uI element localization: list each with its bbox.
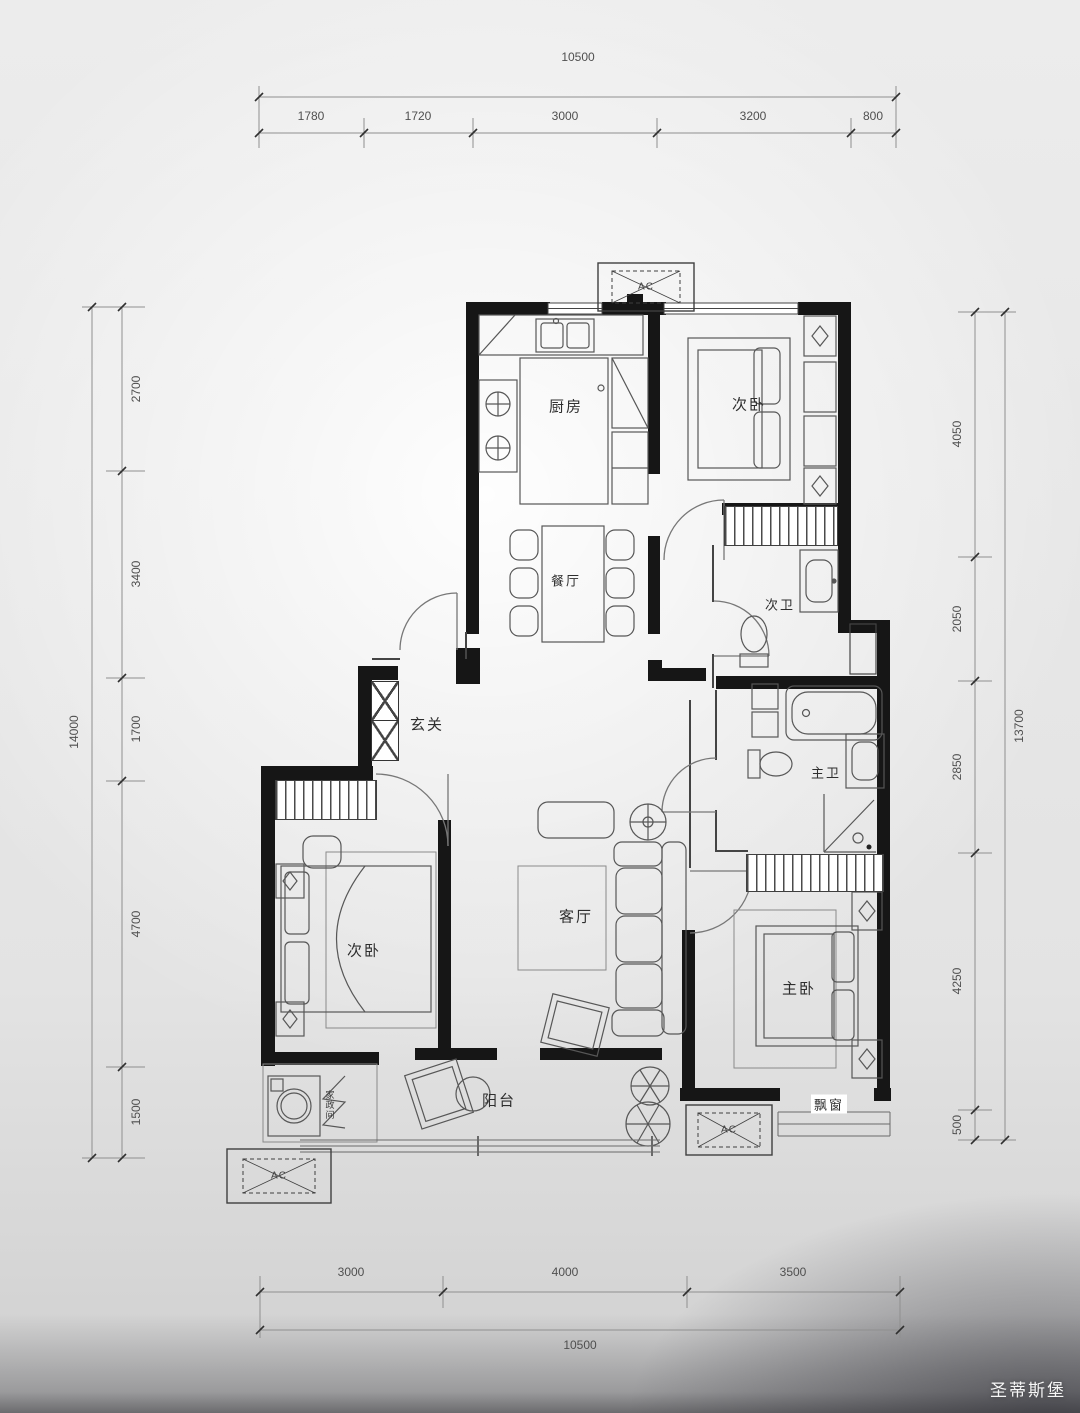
dim-right-seg-3: 2850 [950,754,964,781]
dim-right-seg-4: 4250 [950,968,964,995]
dim-top-seg-3: 3000 [552,109,579,123]
room-label-bedroom-left: 次卧 [347,940,381,961]
dim-top-seg-2: 1720 [405,109,432,123]
wardrobe-bath2 [724,506,838,546]
living-room-furniture [518,802,686,1056]
floorplan-page: 10500 1780 1720 3000 3200 800 14000 2700… [0,0,1080,1413]
dim-bottom-seg-2: 4000 [552,1265,579,1279]
dim-bottom-seg-3: 3500 [780,1265,807,1279]
dim-right-total: 13700 [1012,709,1026,742]
dim-left-seg-4: 4700 [129,911,143,938]
dim-left-total: 14000 [67,715,81,748]
dim-top-total: 10500 [561,50,594,64]
dim-bottom-seg-1: 3000 [338,1265,365,1279]
room-label-dining: 餐厅 [551,571,581,590]
dim-left-seg-2: 3400 [129,561,143,588]
shaft-x-cell [372,721,398,760]
shaft-x-cell [372,682,398,721]
dim-bottom-total: 10500 [563,1338,596,1352]
room-label-bedroom-top: 次卧 [732,394,766,415]
ac-label-top: AC [638,282,654,293]
bay-window [778,1112,890,1136]
room-label-living: 客厅 [559,906,593,927]
floorplan-drawing [0,0,1080,1413]
ac-label-bottom-middle: AC [721,1125,737,1136]
dim-left-seg-1: 2700 [129,376,143,403]
room-label-master-bath: 主卫 [811,763,841,782]
dim-right-seg-5: 500 [950,1115,964,1135]
room-label-foyer: 玄关 [410,714,444,735]
room-label-kitchen: 厨房 [549,396,583,417]
bedroom-left-furniture [276,836,436,1036]
windows [548,303,798,314]
dim-right-seg-1: 4050 [950,421,964,448]
room-label-bay-window: 飘窗 [811,1095,847,1114]
dimension-ticks [88,93,1009,1334]
room-label-balcony: 阳台 [482,1090,516,1111]
dim-left-seg-5: 1500 [129,1099,143,1126]
dim-top-seg-4: 3200 [740,109,767,123]
room-label-utility: 家政间 [324,1090,337,1120]
dim-left-seg-3: 1700 [129,716,143,743]
dim-top-seg-5: 800 [863,109,883,123]
shaft-box [371,681,399,761]
room-label-bath2: 次卫 [765,595,795,614]
watermark: 圣蒂斯堡 [990,1376,1066,1401]
wardrobe-master [746,854,884,892]
room-label-master: 主卧 [782,978,816,999]
ac-label-bottom-left: AC [271,1171,287,1182]
dim-top-seg-1: 1780 [298,109,325,123]
wardrobe-bedroom-left [275,780,377,820]
dim-right-seg-2: 2050 [950,606,964,633]
